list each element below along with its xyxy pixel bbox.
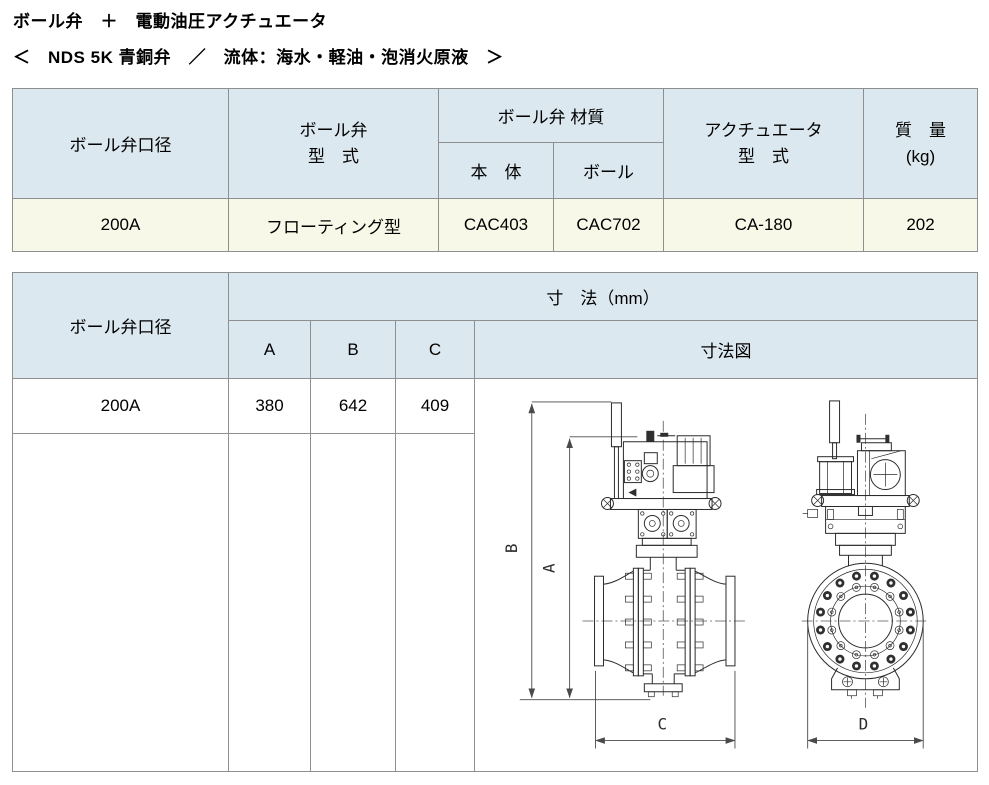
side-view: B A (502, 402, 746, 749)
spec-value-actuator-type: CA-180 (664, 199, 864, 252)
spec-table: ボール弁口径 ボール弁 型 式 ボール弁 材質 アクチュエータ 型 式 質 量 … (12, 88, 978, 252)
dimension-drawing: B A (475, 379, 976, 771)
dim-value-b: 642 (311, 379, 396, 434)
dim-value-c: 409 (396, 379, 475, 434)
empty-cell (229, 434, 311, 772)
dim-header-b: B (311, 321, 396, 379)
dim-header-drawing: 寸法図 (475, 321, 978, 379)
spec-value-bore: 200A (13, 199, 229, 252)
spec-value-material-ball: CAC702 (554, 199, 664, 252)
spec-value-mass: 202 (864, 199, 978, 252)
dim-header-group: 寸 法（mm） (229, 273, 978, 321)
spec-header-mass: 質 量 (kg) (864, 89, 978, 199)
dim-value-a: 380 (229, 379, 311, 434)
spec-header-material-body: 本 体 (439, 143, 554, 199)
dim-label-b: B (502, 544, 521, 554)
page-subtitle: ＜ NDS 5K 青銅弁 ／ 流体：海水・軽油・泡消火原液 ＞ (13, 43, 504, 68)
dim-label-a: A (540, 563, 559, 573)
empty-cell (396, 434, 475, 772)
dim-label-d: D (859, 715, 869, 734)
spec-header-actuator: アクチュエータ 型 式 (664, 89, 864, 199)
spec-data-row: 200A フローティング型 CAC403 CAC702 CA-180 202 (13, 199, 978, 252)
spec-value-valve-type: フローティング型 (229, 199, 439, 252)
spec-header-material-ball: ボール (554, 143, 664, 199)
dim-data-row: 200A 380 642 409 (13, 379, 978, 434)
spec-value-material-body: CAC403 (439, 199, 554, 252)
page-title: ボール弁 ＋ 電動油圧アクチュエータ (13, 7, 327, 32)
spec-header-bore: ボール弁口径 (13, 89, 229, 199)
dimension-table: ボール弁口径 寸 法（mm） A B C 寸法図 200A 380 642 40… (12, 272, 978, 772)
empty-cell (13, 434, 229, 772)
empty-cell (311, 434, 396, 772)
dim-header-a: A (229, 321, 311, 379)
spec-header-material-group: ボール弁 材質 (439, 89, 664, 143)
front-view: D (802, 401, 929, 749)
dim-header-c: C (396, 321, 475, 379)
spec-header-valve-type: ボール弁 型 式 (229, 89, 439, 199)
dim-header-bore: ボール弁口径 (13, 273, 229, 379)
dim-value-bore: 200A (13, 379, 229, 434)
dim-label-c: C (657, 715, 667, 734)
dimension-drawing-cell: B A (475, 379, 978, 772)
